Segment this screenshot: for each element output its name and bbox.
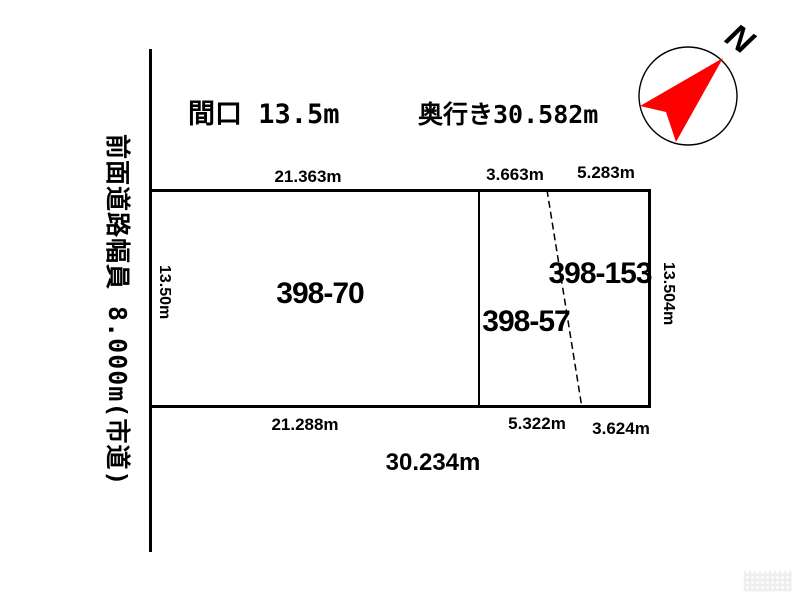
dimension-bottom-left: 21.288m	[271, 415, 338, 435]
dimension-top-middle: 3.663m	[486, 165, 544, 185]
dimension-right-side: 13.504m	[659, 262, 677, 325]
dimension-bottom-middle: 5.322m	[508, 414, 566, 434]
dimension-total-bottom: 30.234m	[386, 449, 481, 477]
frontage-header-label: 間口 13.5m	[188, 99, 340, 130]
parcel-label-398-57: 398-57	[482, 305, 569, 340]
parcel-label-398-153: 398-153	[548, 257, 651, 292]
dimension-top-right: 5.283m	[577, 163, 635, 183]
dimension-left-side: 13.50m	[155, 265, 173, 319]
faint-artifact	[744, 571, 792, 591]
dimension-bottom-right: 3.624m	[592, 419, 650, 439]
dimension-top-left: 21.363m	[274, 167, 341, 187]
parcel-label-398-70: 398-70	[276, 277, 363, 312]
depth-header-label: 奥行き30.582m	[418, 101, 598, 130]
diagonal-dashed-line	[547, 190, 582, 408]
road-width-label: 前面道路幅員 8.000m(市道)	[102, 134, 131, 486]
land-survey-diagram: 前面道路幅員 8.000m(市道) 間口 13.5m 奥行き30.582m N …	[0, 0, 800, 600]
parcel-diagonal-boundary	[149, 189, 651, 408]
